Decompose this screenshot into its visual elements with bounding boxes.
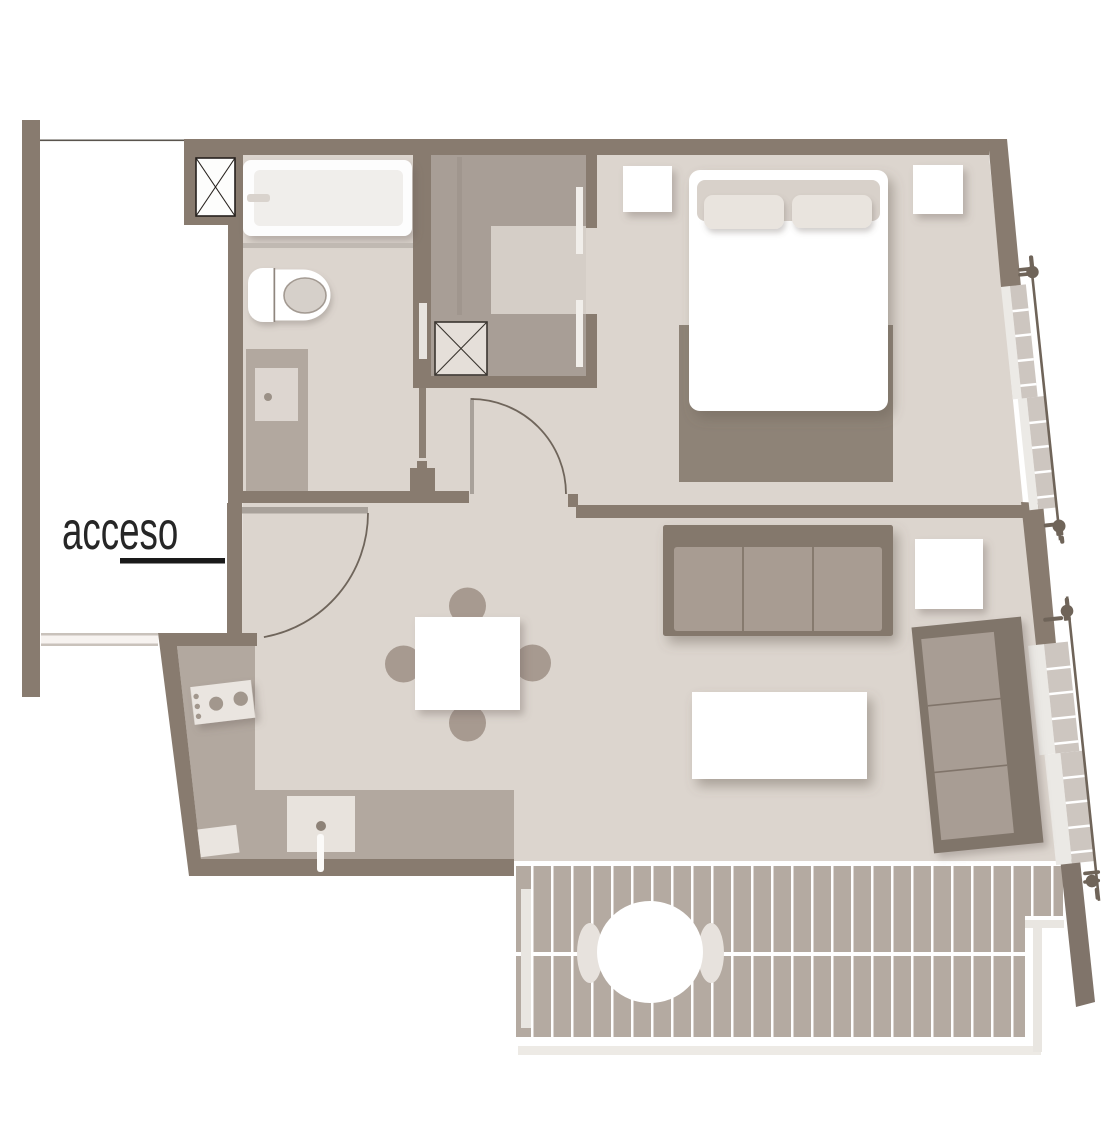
svg-text:acceso: acceso [62,500,178,561]
